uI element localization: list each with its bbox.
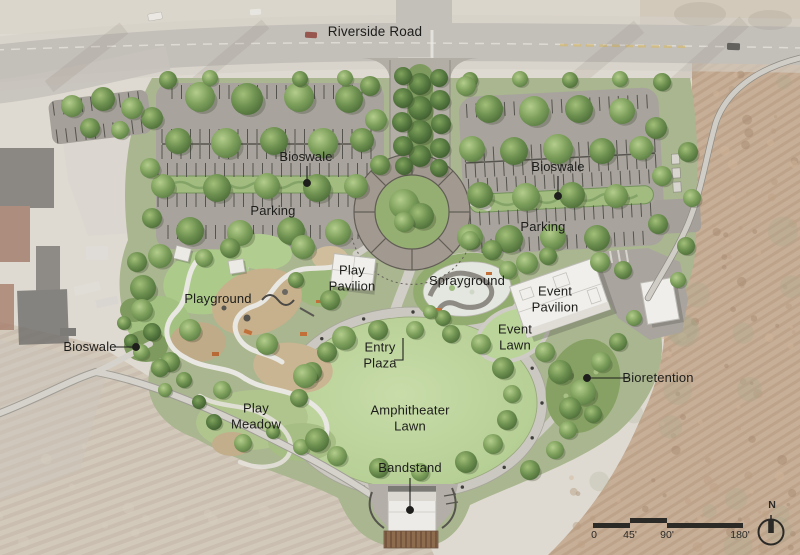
leader-dot-bioswale-west (133, 344, 140, 351)
site-plan-graphic (0, 0, 800, 555)
site-plan-canvas: Riverside Road Bioswale Parking Bioswale… (0, 0, 800, 555)
scale-tick-0: 0 (591, 529, 597, 541)
scale-bar-segment (593, 523, 630, 528)
scale-bar-segment (667, 523, 743, 528)
play-pavilion-building (330, 254, 379, 295)
scale-tick-45: 45' (623, 529, 637, 541)
leader-dot-bioretention (584, 375, 591, 382)
north-arrow: N (750, 501, 794, 551)
leader-dot-bandstand (407, 507, 414, 514)
scale-bar-segment (630, 518, 667, 523)
scale-tick-180: 180' (730, 529, 750, 541)
scale-tick-90: 90' (660, 529, 674, 541)
north-arrow-icon (750, 509, 794, 551)
leader-dot-bioswale-west-lot (304, 180, 311, 187)
scale-bar: 0 45' 90' 180' (588, 514, 758, 548)
leader-dot-bioswale-east-lot (555, 193, 562, 200)
